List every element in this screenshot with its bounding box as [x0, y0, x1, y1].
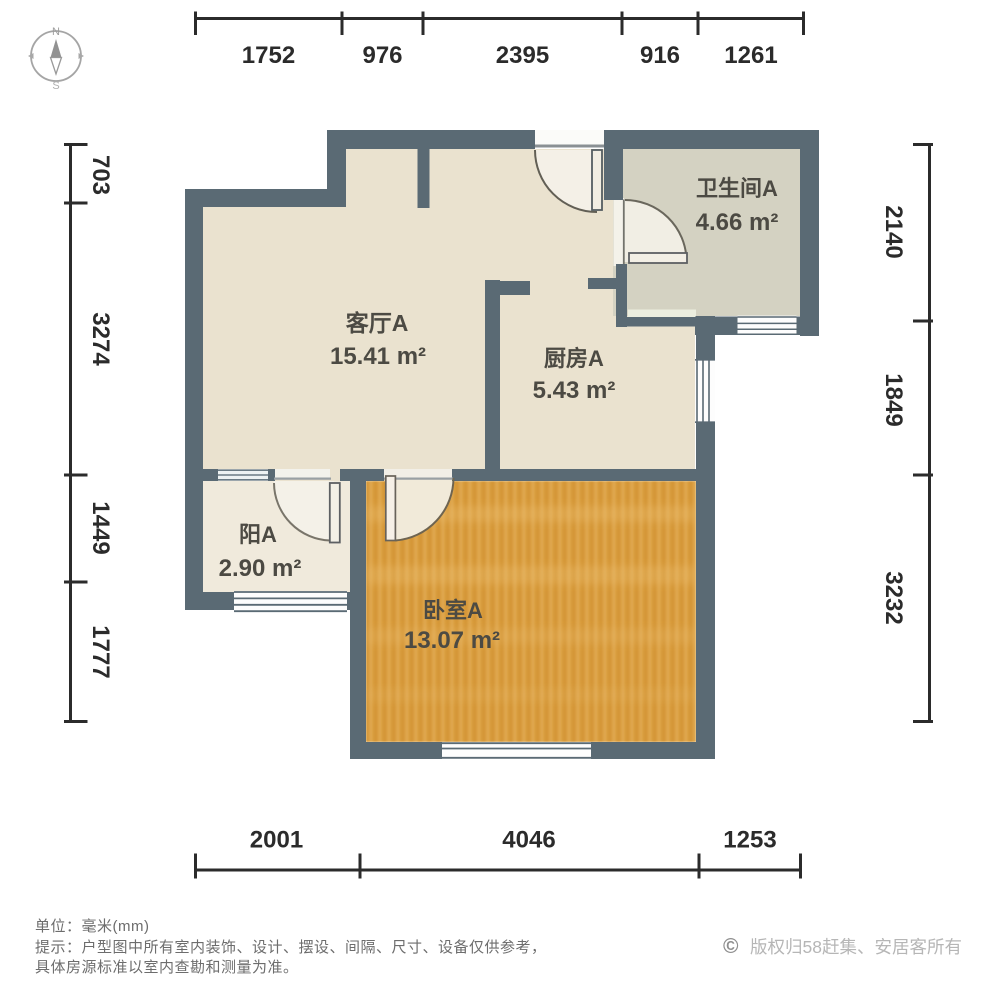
svg-text:1253: 1253 — [723, 827, 776, 854]
svg-text:卫生间A: 卫生间A — [696, 176, 778, 201]
svg-text:2395: 2395 — [496, 42, 549, 69]
svg-text:N: N — [52, 26, 60, 38]
svg-text:提示：户型图中所有室内装饰、设计、摆设、间隔、尺寸、设备仅供: 提示：户型图中所有室内装饰、设计、摆设、间隔、尺寸、设备仅供参考， — [35, 939, 547, 956]
svg-text:1449: 1449 — [87, 501, 114, 554]
svg-text:S: S — [52, 80, 59, 92]
svg-text:客厅A: 客厅A — [346, 310, 409, 336]
svg-text:版权归58赶集、安居客所有: 版权归58赶集、安居客所有 — [750, 937, 962, 957]
svg-text:4046: 4046 — [502, 827, 555, 854]
svg-text:703: 703 — [87, 155, 114, 195]
svg-text:2.90 m²: 2.90 m² — [219, 555, 302, 582]
svg-text:5.43 m²: 5.43 m² — [533, 377, 616, 404]
svg-text:阳A: 阳A — [239, 522, 277, 547]
svg-text:3274: 3274 — [87, 312, 114, 366]
svg-text:单位：毫米(mm): 单位：毫米(mm) — [35, 917, 149, 935]
svg-text:976: 976 — [362, 42, 402, 69]
svg-text:916: 916 — [640, 42, 680, 69]
svg-text:卧室A: 卧室A — [423, 598, 483, 623]
svg-text:厨房A: 厨房A — [544, 346, 604, 371]
svg-text:1752: 1752 — [242, 42, 295, 69]
svg-text:1777: 1777 — [87, 625, 114, 678]
svg-text:1849: 1849 — [880, 373, 907, 426]
svg-text:1261: 1261 — [724, 42, 777, 69]
svg-text:2140: 2140 — [880, 205, 907, 258]
svg-text:4.66 m²: 4.66 m² — [696, 209, 779, 236]
svg-text:13.07 m²: 13.07 m² — [404, 627, 500, 654]
svg-text:3232: 3232 — [880, 571, 907, 624]
svg-text:15.41 m²: 15.41 m² — [330, 343, 426, 370]
svg-text:具体房源标准以室内查勘和测量为准。: 具体房源标准以室内查勘和测量为准。 — [35, 959, 299, 976]
svg-text:©: © — [723, 935, 739, 958]
svg-text:2001: 2001 — [250, 827, 303, 854]
